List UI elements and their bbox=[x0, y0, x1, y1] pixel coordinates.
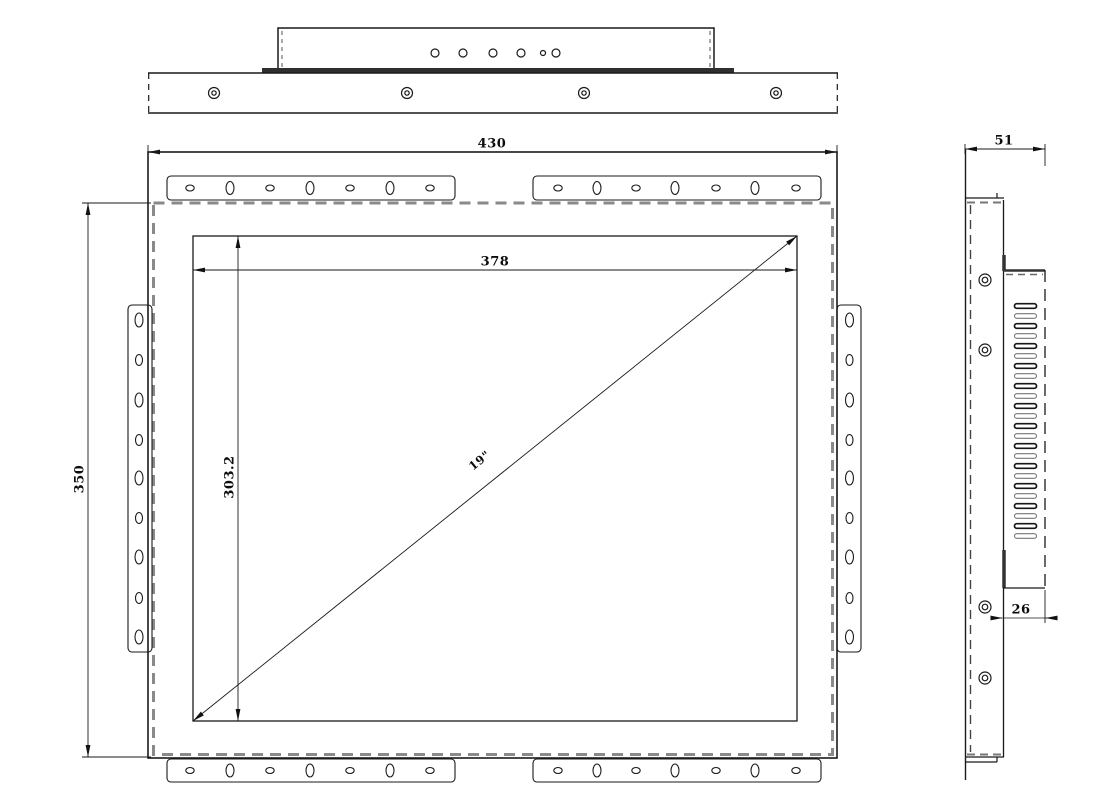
vent-slot bbox=[1015, 464, 1037, 469]
hole bbox=[846, 355, 853, 366]
bar-edges bbox=[148, 73, 838, 113]
hole bbox=[136, 513, 143, 524]
hole bbox=[846, 513, 853, 524]
vent-slot bbox=[1015, 414, 1037, 419]
hole bbox=[459, 49, 467, 57]
drawing-canvas: 430 378 303.2 350 19" 51 26 const data =… bbox=[0, 0, 1118, 801]
vent-slot bbox=[1015, 354, 1037, 359]
top-bracket-left bbox=[167, 176, 455, 200]
vent-slot bbox=[1015, 434, 1037, 439]
vent-slot bbox=[1015, 344, 1037, 349]
vent-slots bbox=[1015, 304, 1037, 539]
dim-active-height-label: 303.2 bbox=[224, 455, 237, 498]
top-bracket-holes bbox=[186, 182, 800, 195]
diagonal-dimension-line bbox=[193, 236, 797, 721]
hole bbox=[135, 313, 143, 327]
hole bbox=[136, 355, 143, 366]
screw-head bbox=[579, 88, 590, 99]
screw-head bbox=[979, 672, 991, 684]
hole bbox=[846, 313, 854, 327]
hole bbox=[135, 393, 143, 407]
top-bracket-right bbox=[533, 176, 821, 200]
vent-slot bbox=[1015, 334, 1037, 339]
hole bbox=[489, 49, 497, 57]
dim-active-width-label: 378 bbox=[481, 256, 510, 269]
screw-head bbox=[979, 344, 991, 356]
vent-slot bbox=[1015, 374, 1037, 379]
bottom-bracket-holes bbox=[186, 764, 800, 777]
screw-head bbox=[209, 88, 220, 99]
chassis-screws bbox=[209, 88, 782, 99]
hole bbox=[846, 550, 854, 564]
left-bracket-holes bbox=[135, 313, 143, 644]
vent-slot bbox=[1015, 304, 1037, 309]
vent-slot bbox=[1015, 424, 1037, 429]
hole bbox=[226, 182, 234, 195]
hole bbox=[136, 435, 143, 446]
rear-cover-holes bbox=[431, 49, 560, 57]
hole bbox=[426, 768, 434, 774]
hole bbox=[266, 768, 274, 774]
vent-slot bbox=[1015, 364, 1037, 369]
hole bbox=[554, 185, 562, 191]
hole bbox=[135, 630, 143, 644]
hole bbox=[426, 185, 434, 191]
hole bbox=[266, 185, 274, 191]
hole bbox=[593, 182, 601, 195]
bottom-bracket-right bbox=[533, 759, 821, 782]
hole bbox=[751, 182, 759, 195]
screw-head bbox=[402, 88, 413, 99]
top-view bbox=[148, 28, 838, 113]
hole bbox=[386, 764, 394, 777]
screw-head bbox=[771, 88, 782, 99]
vent-slot bbox=[1015, 474, 1037, 479]
vent-slot bbox=[1015, 314, 1037, 319]
chassis-hidden-outline bbox=[154, 203, 833, 755]
hole bbox=[346, 768, 354, 774]
hole bbox=[846, 435, 853, 446]
dim-rear-box-depth-label: 26 bbox=[1011, 604, 1030, 617]
hole bbox=[712, 768, 720, 774]
screw-head bbox=[979, 601, 991, 613]
vent-slot bbox=[1015, 394, 1037, 399]
hole bbox=[186, 768, 194, 774]
vent-slot bbox=[1015, 384, 1037, 389]
vent-slot bbox=[1015, 504, 1037, 509]
hole bbox=[431, 49, 439, 57]
vent-slot bbox=[1015, 404, 1037, 409]
rear-cover-outline bbox=[278, 28, 714, 70]
hole bbox=[346, 185, 354, 191]
hole bbox=[306, 764, 314, 777]
hole bbox=[135, 471, 143, 485]
hole bbox=[846, 393, 854, 407]
hole bbox=[632, 768, 640, 774]
side-view bbox=[965, 144, 1057, 780]
height-dimension bbox=[82, 203, 151, 757]
bezel-outline bbox=[148, 152, 837, 758]
hole bbox=[135, 550, 143, 564]
vent-slot bbox=[1015, 534, 1037, 539]
dim-overall-height-label: 350 bbox=[74, 465, 87, 494]
dim-overall-width-label: 430 bbox=[478, 138, 507, 151]
vent-slot bbox=[1015, 444, 1037, 449]
vent-slot bbox=[1015, 494, 1037, 499]
hole bbox=[554, 768, 562, 774]
right-bracket bbox=[837, 305, 861, 652]
hole bbox=[751, 764, 759, 777]
side-screws bbox=[979, 274, 991, 684]
hole bbox=[186, 185, 194, 191]
hole bbox=[632, 185, 640, 191]
hole bbox=[792, 185, 800, 191]
dim-depth-label: 51 bbox=[994, 135, 1013, 148]
engineering-drawing bbox=[0, 0, 1118, 801]
bottom-lip bbox=[965, 757, 1004, 762]
hole bbox=[136, 593, 143, 604]
vent-slot bbox=[1015, 514, 1037, 519]
hole bbox=[386, 182, 394, 195]
mounting-flange-bar bbox=[262, 68, 734, 73]
hole bbox=[541, 51, 546, 56]
hole bbox=[226, 764, 234, 777]
hole bbox=[846, 630, 854, 644]
chassis-top-bar bbox=[148, 73, 838, 113]
hole bbox=[517, 49, 525, 57]
top-lip bbox=[965, 193, 1004, 198]
extension-lines bbox=[82, 203, 151, 757]
hole bbox=[846, 593, 853, 604]
hole bbox=[671, 764, 679, 777]
screw-head bbox=[979, 274, 991, 286]
bezel-profile bbox=[965, 149, 1004, 780]
vent-slot bbox=[1015, 454, 1037, 459]
hole bbox=[792, 768, 800, 774]
vent-slot bbox=[1015, 524, 1037, 529]
hole bbox=[671, 182, 679, 195]
bottom-bracket-left bbox=[167, 759, 455, 782]
vent-slot bbox=[1015, 324, 1037, 329]
right-bracket-holes bbox=[846, 313, 854, 644]
hole bbox=[593, 764, 601, 777]
hole bbox=[306, 182, 314, 195]
bar-end-hidden-edges bbox=[149, 73, 838, 113]
hole bbox=[552, 49, 560, 57]
hole bbox=[846, 471, 854, 485]
hole bbox=[712, 185, 720, 191]
rear-cover-hidden-edges bbox=[282, 31, 710, 68]
vent-slot bbox=[1015, 484, 1037, 489]
